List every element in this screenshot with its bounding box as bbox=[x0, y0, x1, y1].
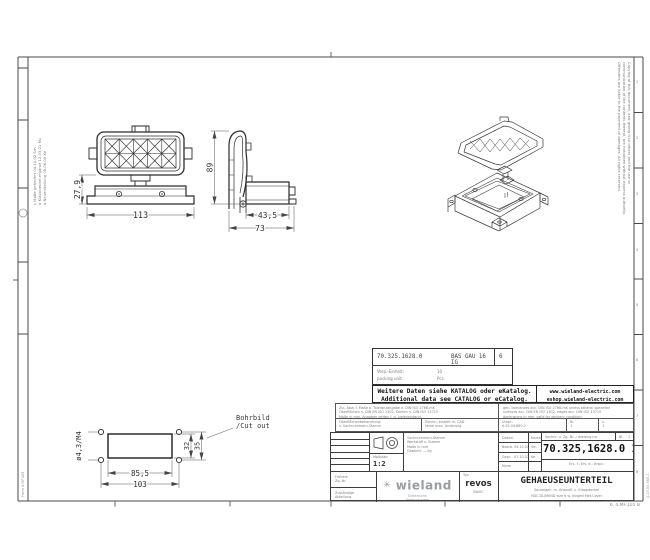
scale-value: 1:2 bbox=[371, 459, 401, 469]
cutout-label-line2: /Cut out bbox=[236, 422, 270, 430]
title-block: Maßstab 1:2 Sachnummern-StammWerkstoff s… bbox=[330, 432, 634, 501]
part-note-value-2: Pcs. bbox=[435, 375, 465, 382]
wieland-sun-icon: ✳ bbox=[383, 481, 391, 491]
material-notes: Sachnummern-StammWerkstoff s. Stamm Maße… bbox=[405, 435, 495, 454]
dim-32: 32 bbox=[183, 442, 191, 450]
brand-wordmark: wieland bbox=[396, 479, 452, 493]
part-note-label-en: packing unit: bbox=[375, 375, 435, 382]
part-table: 70.325.1628.0 BAS GAU 16 IG 6 Verp.-Einh… bbox=[372, 348, 513, 385]
col-date-label: Datum bbox=[500, 435, 526, 441]
revision-notes: c Maße geändert 04.10.02 Smb Klappdeckel… bbox=[33, 138, 48, 205]
form-number-right: b. 4.MF.105 B bbox=[560, 503, 640, 509]
brand-logo: ✳ wieland ElektrischeVerbindungen bbox=[378, 474, 457, 500]
top-view bbox=[87, 126, 194, 204]
catalog-banner: Weitere Daten siehe KATALOG oder eKatalo… bbox=[372, 385, 634, 403]
legal-sub-4: Bl.1 bbox=[568, 419, 596, 430]
isometric-view bbox=[448, 117, 548, 231]
sheet-label: Bl. bbox=[617, 434, 625, 440]
form-number-left: Form 4.MF.105 bbox=[21, 471, 26, 497]
drawing-title: GEHAEUSEUNTERTEIL bbox=[500, 475, 633, 487]
dim-35: 35 bbox=[194, 442, 202, 450]
grid-ref-4: 4 bbox=[636, 248, 638, 252]
dim-hole-spec: ø4,3/M4 bbox=[75, 431, 83, 461]
dim-113: 113 bbox=[133, 211, 148, 221]
grid-ref-1: 1 bbox=[636, 80, 638, 84]
archive-ref: 4.25.04.680.2 bbox=[646, 474, 650, 499]
dim-27-9: 27,9 bbox=[73, 180, 82, 199]
row-gepr-name: Ke bbox=[529, 454, 541, 460]
row-norm-label: Norm bbox=[500, 463, 514, 469]
legal-sub-3: Urspr.:4.25.04.680.2 bbox=[500, 419, 564, 430]
grid-ref-6: 6 bbox=[636, 358, 638, 362]
dim-85-5: 85,5 bbox=[131, 469, 149, 478]
dim-89: 89 bbox=[206, 163, 215, 173]
projection-symbol bbox=[371, 435, 401, 451]
brand-tagline: ElektrischeVerbindungen bbox=[380, 494, 455, 500]
replaces-note: Ers. f.: Ers. d.: Urspr.: bbox=[543, 461, 631, 467]
legal-sub-5: v.1 bbox=[600, 419, 632, 430]
legal-sub-2: Zeichn. erstellt m. CADkeine man. Änderu… bbox=[423, 419, 497, 430]
grid-ref-3: 3 bbox=[636, 192, 638, 196]
drawing-number: 70.325,1628.0 13K bbox=[541, 442, 633, 456]
grid-ref-8: 8 bbox=[636, 470, 638, 474]
drawing-no-label: Sachnr. u. Zg.-Nr. / drawing no. bbox=[543, 434, 613, 440]
row-gepr-date: 07.10.02 bbox=[512, 454, 528, 460]
drawing-sheet: 113 27,9 89 43,5 73 bbox=[0, 0, 650, 560]
legal-band: Zul. Abw. f. Maße o. Toleranzangabe n. D… bbox=[335, 403, 634, 432]
legal-de: Zul. Abw. f. Maße o. Toleranzangabe n. D… bbox=[337, 405, 497, 420]
punch-hole bbox=[19, 209, 27, 217]
legal-sub-1: Oberflächenbehandlung:s. Sachnummern-Sta… bbox=[337, 419, 420, 430]
copyright-note: Copying of this document, and giving it … bbox=[616, 62, 631, 215]
grid-ref-2: 2 bbox=[636, 136, 638, 140]
former-no-cell: FrühereZg.-Nr. bbox=[333, 474, 374, 485]
row-bearb-date: 04.10.02 bbox=[512, 444, 528, 450]
col-name-label: Name bbox=[529, 435, 541, 441]
side-view bbox=[229, 131, 296, 213]
dim-43-5: 43,5 bbox=[258, 211, 277, 220]
legal-en: gen. tolerances acc. DIN ISO 2768-mK unl… bbox=[501, 405, 633, 420]
sheet-no: 1 bbox=[626, 434, 632, 440]
cutout-label-line1: Bohrbild bbox=[236, 414, 270, 422]
row-bearb-name: Sm bbox=[529, 444, 541, 450]
cutout-view bbox=[98, 429, 181, 462]
part-index: 6 bbox=[497, 353, 511, 361]
grid-ref-5: 5 bbox=[636, 303, 638, 307]
part-number: 70.325.1628.0 bbox=[375, 353, 455, 361]
dim-73: 73 bbox=[255, 224, 265, 233]
dept-cell: ZuständigeAbteilung bbox=[333, 490, 374, 501]
dim-103: 103 bbox=[133, 480, 147, 489]
series-sub: BASIC bbox=[459, 489, 498, 495]
drawing-subtitle-en: HDC DL/MEND size 6 w. hinged Met.Cover bbox=[500, 493, 633, 499]
grid-ref-7: 7 bbox=[636, 414, 638, 418]
part-type: BAS GAU 16 IG bbox=[449, 353, 495, 367]
